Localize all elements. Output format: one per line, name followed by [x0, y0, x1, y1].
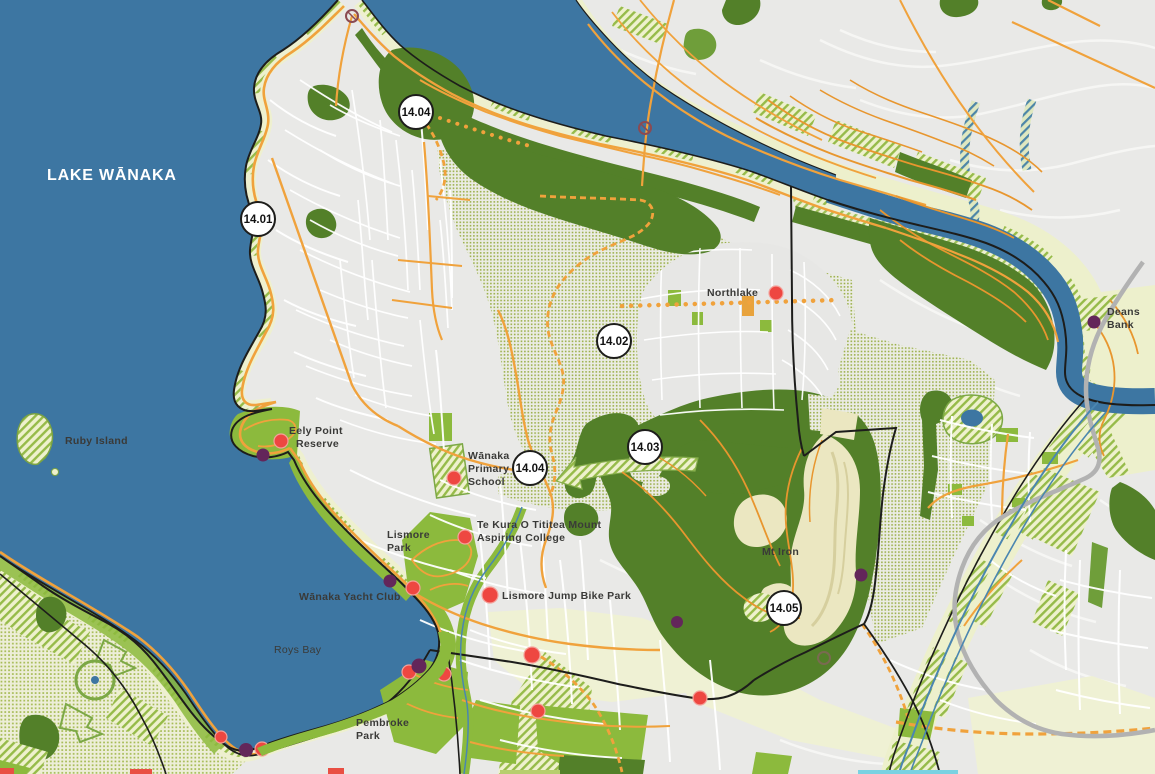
svg-text:Bank: Bank — [1107, 319, 1134, 331]
svg-text:Wānaka Yacht Club: Wānaka Yacht Club — [299, 591, 401, 603]
svg-text:14.02: 14.02 — [600, 336, 629, 348]
svg-text:Mt Iron: Mt Iron — [762, 546, 799, 558]
svg-text:Deans: Deans — [1107, 306, 1140, 318]
svg-text:14.05: 14.05 — [770, 603, 799, 615]
svg-text:14.01: 14.01 — [244, 214, 273, 226]
svg-text:Lismore: Lismore — [387, 529, 430, 541]
svg-text:Eely Point: Eely Point — [289, 425, 343, 437]
svg-text:Lismore Jump Bike Park: Lismore Jump Bike Park — [502, 590, 631, 602]
svg-text:Primary: Primary — [468, 463, 509, 475]
svg-text:LAKE WĀNAKA: LAKE WĀNAKA — [47, 165, 177, 184]
svg-text:Northlake: Northlake — [707, 287, 758, 299]
svg-text:14.03: 14.03 — [631, 442, 660, 454]
svg-text:Aspiring College: Aspiring College — [477, 532, 565, 544]
svg-text:14.04: 14.04 — [402, 107, 431, 119]
svg-text:Park: Park — [387, 542, 411, 554]
svg-text:Roys Bay: Roys Bay — [274, 644, 322, 656]
svg-text:Reserve: Reserve — [296, 438, 339, 450]
svg-text:Ruby Island: Ruby Island — [65, 435, 128, 447]
svg-text:Park: Park — [356, 730, 380, 742]
svg-text:14.04: 14.04 — [516, 463, 545, 475]
svg-text:School: School — [468, 476, 505, 488]
svg-text:Te Kura O Tititea Mount: Te Kura O Tititea Mount — [477, 519, 602, 531]
svg-text:Wānaka: Wānaka — [468, 450, 509, 462]
svg-text:Pembroke: Pembroke — [356, 717, 409, 729]
